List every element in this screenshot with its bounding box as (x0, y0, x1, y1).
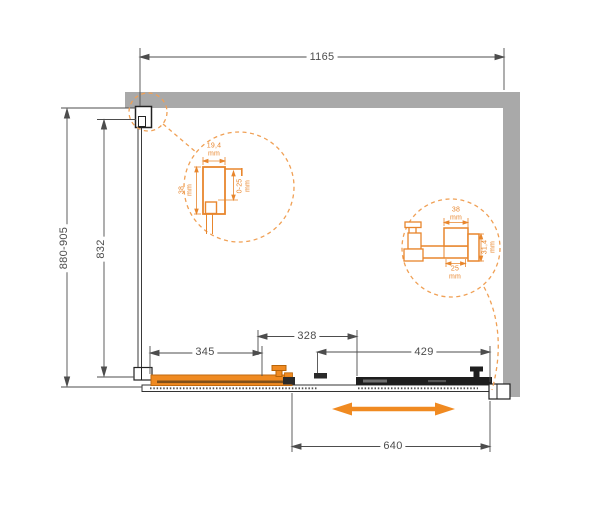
dim-label-fixed-panel-width: 429 (411, 346, 436, 358)
side-glass-panel (138, 108, 142, 377)
dimension-429 (317, 346, 490, 382)
panel-bracket (314, 373, 327, 379)
technical-drawing-canvas: 1165 880-905 832 345 328 429 640 19,4 mm… (0, 0, 600, 505)
wall-profile-top-left (136, 107, 152, 128)
detail-right-height-label: 31,4 mm (482, 240, 497, 254)
detail-left-depth-label: 38 mm (179, 184, 194, 196)
dim-label-sliding-door-width: 345 (192, 346, 217, 358)
door-knob-orange (272, 366, 286, 371)
wall-profile-right (489, 384, 510, 399)
dim-label-opening-width: 640 (380, 440, 405, 452)
corner-profile-bottom-left (134, 368, 152, 381)
detail-left-width-label: 19,4 mm (207, 143, 221, 158)
dim-label-total-width: 1165 (307, 51, 338, 63)
fixed-door-panel (314, 367, 492, 386)
dim-label-overlap-width: 328 (294, 330, 319, 342)
detail-left-profile (203, 167, 243, 234)
door-roller (283, 377, 295, 385)
dim-label-side-glass-depth: 832 (95, 236, 107, 261)
callout-leader-curve (484, 287, 498, 390)
slide-direction-arrow-icon (332, 403, 455, 416)
wall-top (125, 92, 518, 108)
dim-label-depth-range: 880-905 (58, 224, 70, 272)
detail-left-adjustment-label: 0-25 mm (237, 179, 252, 194)
detail-right-top-width-label: 38 mm (450, 207, 462, 222)
wall-right (503, 92, 520, 397)
drawing-linework (0, 0, 600, 505)
callout-connector-line (163, 124, 197, 153)
detail-right-bottom-width-label: 25 mm (449, 266, 461, 281)
sliding-door-panel (151, 366, 295, 386)
door-knob-black (470, 367, 483, 372)
